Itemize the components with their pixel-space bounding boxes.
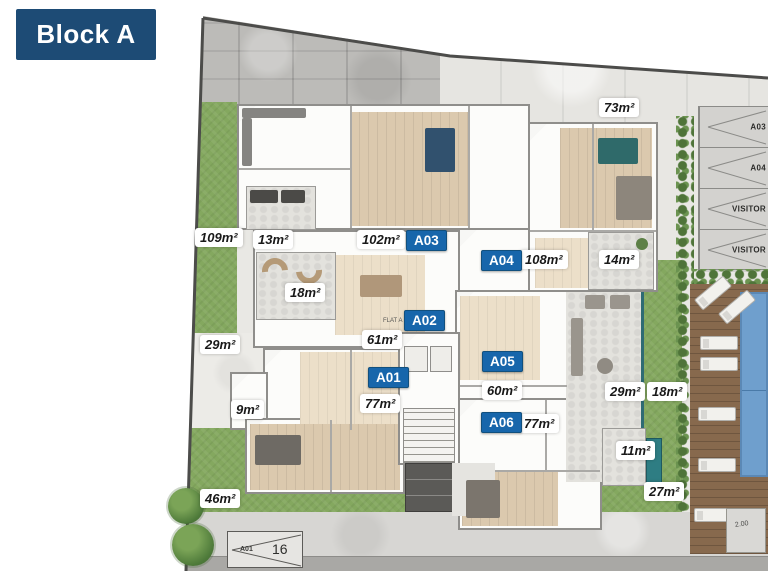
area-label-flat-a02: 61m² (362, 330, 402, 349)
area-label-flat-a01: 77m² (360, 394, 400, 413)
staircase (403, 408, 455, 463)
unit-badge-a01: A01 (368, 367, 409, 388)
interior-wall (530, 230, 656, 232)
area-label-balcony-a06: 11m² (616, 441, 655, 460)
outdoor-chair (585, 295, 605, 309)
planter (250, 190, 278, 203)
planter (281, 190, 305, 203)
bed (466, 480, 500, 518)
interior-wall (330, 420, 332, 492)
tree (172, 524, 214, 566)
interior-wall (350, 350, 352, 430)
kitchen-counter (242, 118, 252, 166)
area-label-flat-a03: 102m² (357, 230, 405, 249)
round-table (597, 358, 613, 374)
interior-wall (545, 400, 547, 470)
area-label-garden-a05: 18m² (647, 382, 687, 401)
unit-badge-a02: A02 (404, 310, 445, 331)
elevator (430, 346, 452, 372)
area-label-flat-a05: 60m² (482, 381, 522, 400)
area-label-balcony-a01: 9m² (231, 400, 264, 419)
area-label-patio-left: 29m² (200, 335, 240, 354)
unit-badge-a04: A04 (481, 250, 522, 271)
dining-table (360, 275, 402, 297)
bed (255, 435, 301, 465)
storage-units (405, 463, 455, 512)
area-label-flat-a04: 108m² (520, 250, 568, 269)
unit-badge-a05: A05 (482, 351, 523, 372)
bed (616, 176, 652, 220)
flat-tag-text: FLAT A (383, 318, 402, 324)
tree (168, 488, 204, 524)
interior-wall (592, 124, 594, 230)
area-label-patio-a05: 29m² (605, 382, 645, 401)
block-title: Block A (16, 9, 156, 60)
bed (425, 128, 455, 172)
floor-plan-block-a: A03 A04 VISITOR VISITOR 2.00 (0, 0, 768, 571)
area-label-yard-left: 109m² (195, 228, 243, 247)
interior-wall (468, 106, 470, 228)
unit-badge-a03: A03 (406, 230, 447, 251)
area-label-patio-a06: 27m² (644, 482, 684, 501)
interior-wall (350, 106, 352, 228)
interior-wall (239, 168, 351, 170)
area-label-balcony-a04: 14m² (599, 250, 639, 269)
area-label-yard-top-right: 73m² (599, 98, 639, 117)
area-label-balcony-a03: 13m² (253, 230, 293, 249)
unit-badge-a06: A06 (481, 412, 522, 433)
area-label-terrace-a02: 18m² (285, 283, 325, 302)
kitchen-counter (242, 108, 306, 118)
outdoor-sofa (571, 318, 583, 376)
outdoor-chair (610, 295, 630, 309)
area-label-yard-bottom: 46m² (200, 489, 240, 508)
bed (598, 138, 638, 164)
area-label-flat-a06: 77m² (519, 414, 559, 433)
plant (636, 238, 648, 250)
